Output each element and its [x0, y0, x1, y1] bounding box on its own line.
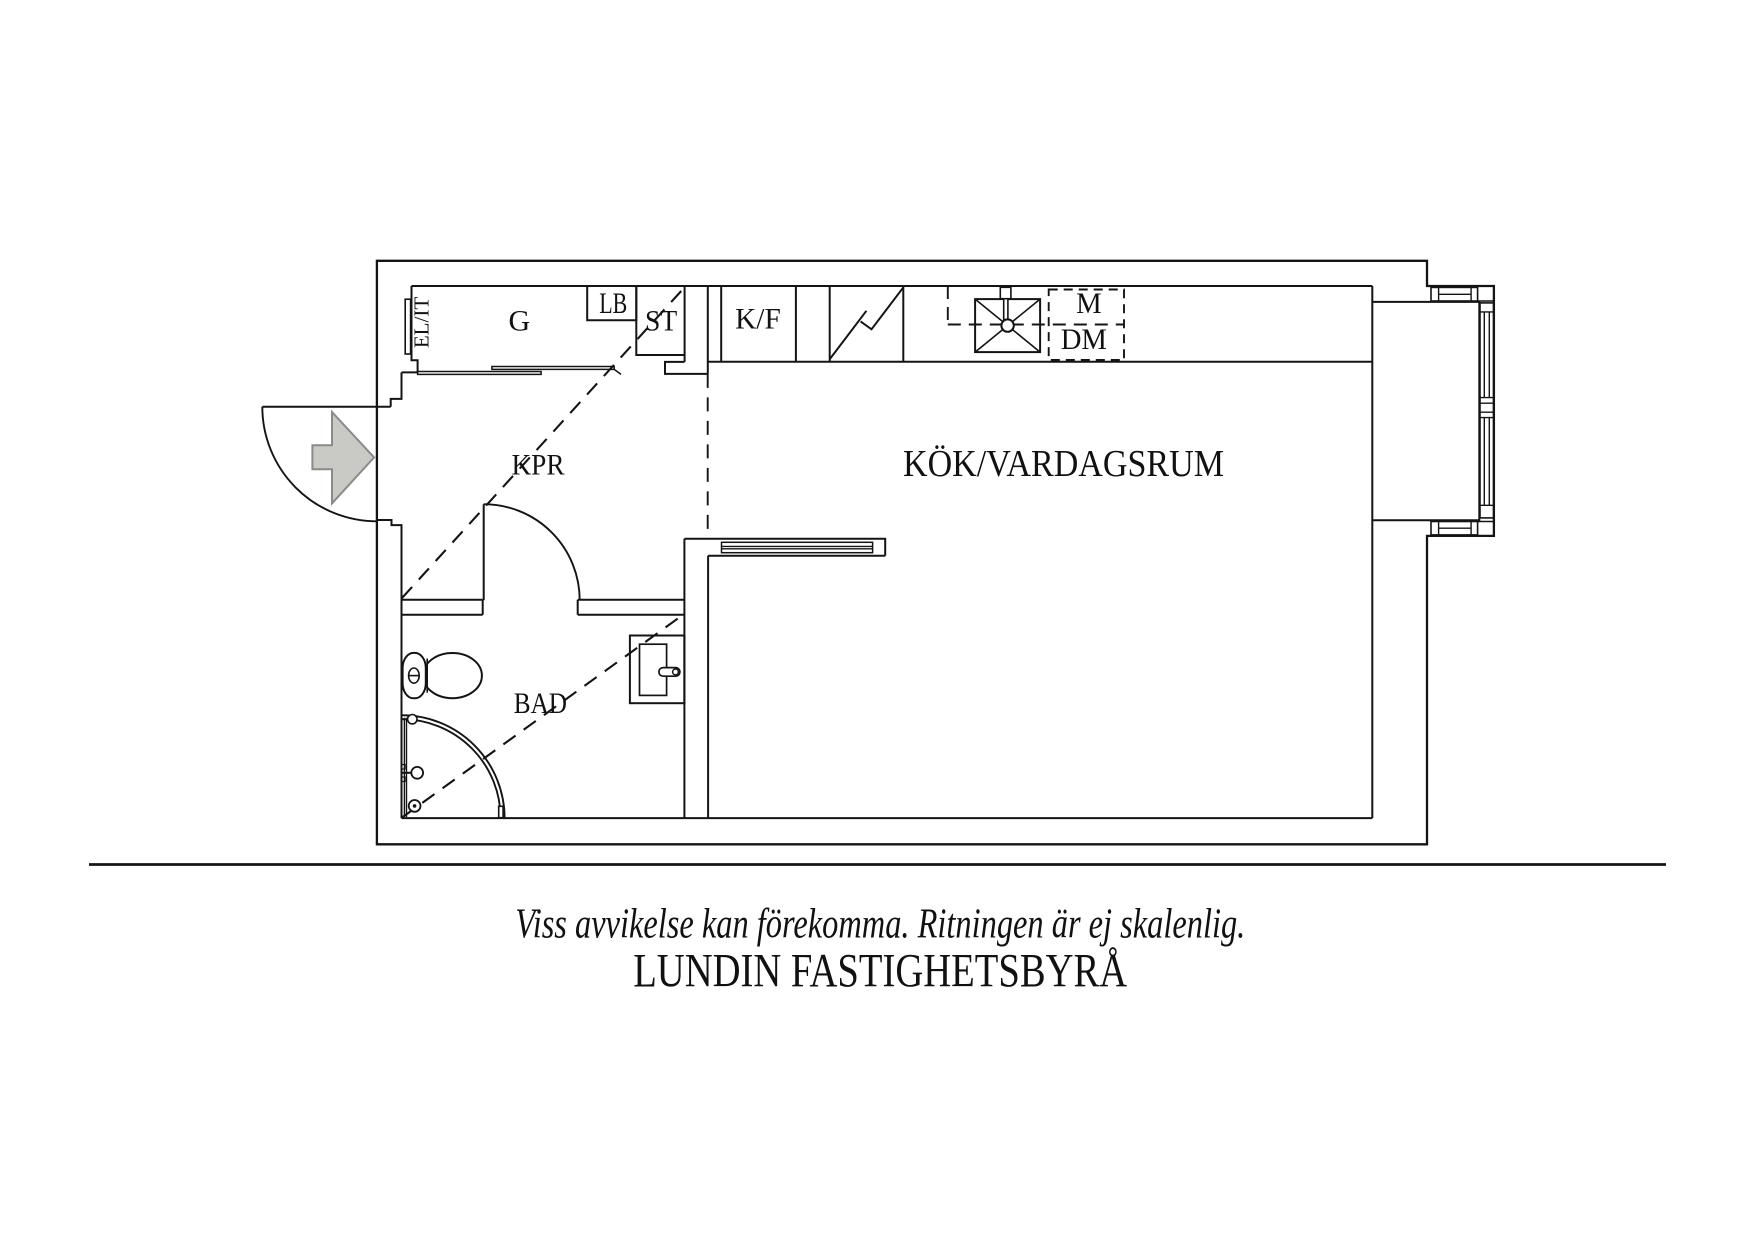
svg-text:EL/IT: EL/IT — [410, 297, 434, 348]
svg-text:DM: DM — [1061, 323, 1107, 356]
svg-text:BAD: BAD — [514, 687, 567, 720]
svg-text:ST: ST — [645, 305, 677, 338]
svg-text:LUNDIN FASTIGHETSBYRÅ: LUNDIN FASTIGHETSBYRÅ — [633, 944, 1127, 997]
svg-text:KÖK/VARDAGSRUM: KÖK/VARDAGSRUM — [903, 443, 1224, 485]
svg-text:KPR: KPR — [512, 449, 565, 482]
svg-text:Viss avvikelse kan förekomma.: Viss avvikelse kan förekomma. Ritningen … — [515, 902, 1245, 948]
svg-text:LB: LB — [599, 287, 627, 320]
svg-text:M: M — [1076, 287, 1102, 320]
svg-text:K/F: K/F — [735, 303, 781, 336]
svg-text:G: G — [508, 305, 530, 338]
